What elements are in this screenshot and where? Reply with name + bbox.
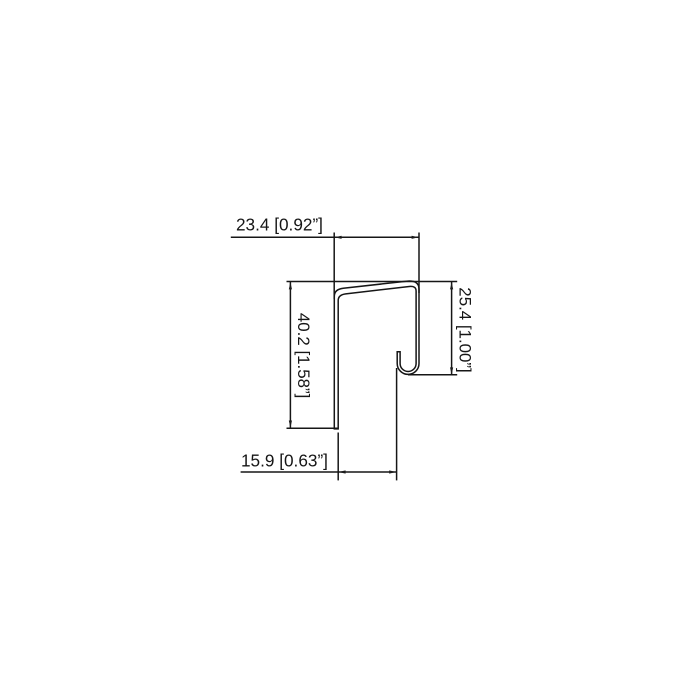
svg-text:25.4 [1.00”]: 25.4 [1.00”] <box>455 287 474 372</box>
svg-text:15.9 [0.63”]: 15.9 [0.63”] <box>241 450 328 470</box>
svg-text:23.4 [0.92”]: 23.4 [0.92”] <box>236 214 323 234</box>
svg-text:40.2 [1.58”]: 40.2 [1.58”] <box>294 313 313 398</box>
